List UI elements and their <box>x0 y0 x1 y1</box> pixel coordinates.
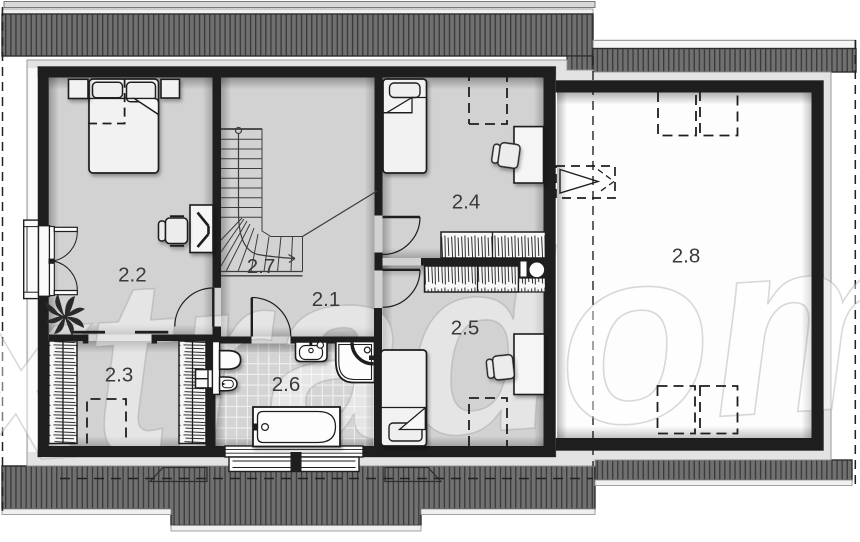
svg-text:2.1: 2.1 <box>312 288 341 311</box>
svg-text:2.6: 2.6 <box>272 373 301 396</box>
svg-text:2.5: 2.5 <box>451 317 480 340</box>
svg-text:2.3: 2.3 <box>105 364 134 387</box>
svg-text:2.7: 2.7 <box>247 255 276 278</box>
svg-text:2.4: 2.4 <box>452 191 481 214</box>
svg-text:2.2: 2.2 <box>118 264 147 287</box>
svg-text:2.8: 2.8 <box>672 245 701 268</box>
